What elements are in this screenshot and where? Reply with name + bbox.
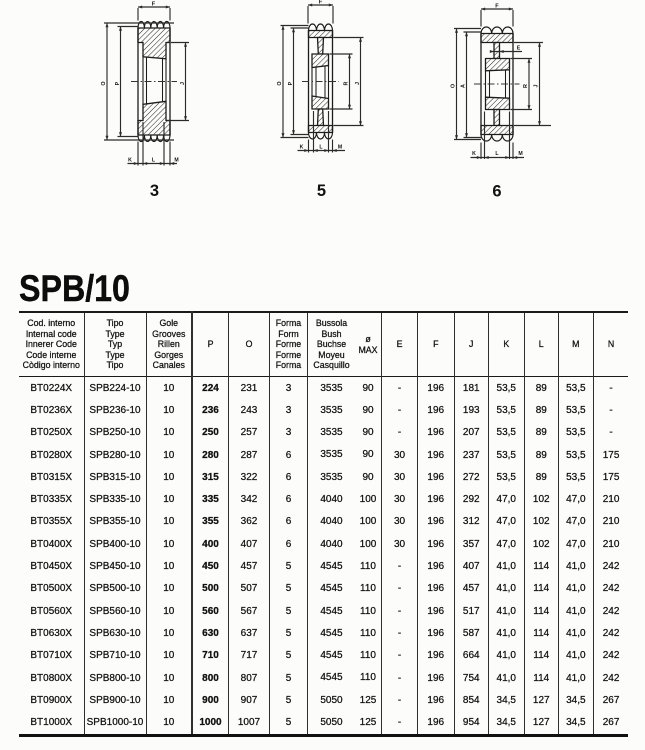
svg-text:M: M [174,158,178,164]
svg-text:3: 3 [150,182,159,200]
svg-text:J: J [180,82,186,85]
svg-text:L: L [319,145,323,151]
svg-text:R: R [344,81,350,85]
svg-text:J: J [534,85,540,88]
svg-text:K: K [128,158,132,164]
svg-text:P: P [288,81,294,85]
svg-text:P: P [115,81,121,85]
svg-text:O: O [277,81,283,85]
svg-text:M: M [518,151,522,157]
svg-text:E: E [517,46,521,52]
svg-text:F: F [495,4,499,10]
svg-text:O: O [101,81,107,85]
svg-text:M: M [338,145,342,151]
svg-text:J: J [355,82,361,85]
svg-text:L: L [152,158,156,164]
svg-text:5: 5 [317,182,326,200]
svg-text:K: K [300,145,304,151]
svg-text:R: R [523,84,529,88]
svg-text:O: O [451,84,457,88]
svg-text:K: K [472,151,476,157]
svg-text:F: F [152,2,156,8]
svg-text:A: A [461,84,467,88]
svg-text:L: L [495,151,499,157]
svg-text:6: 6 [492,183,501,201]
svg-text:F: F [319,0,323,6]
